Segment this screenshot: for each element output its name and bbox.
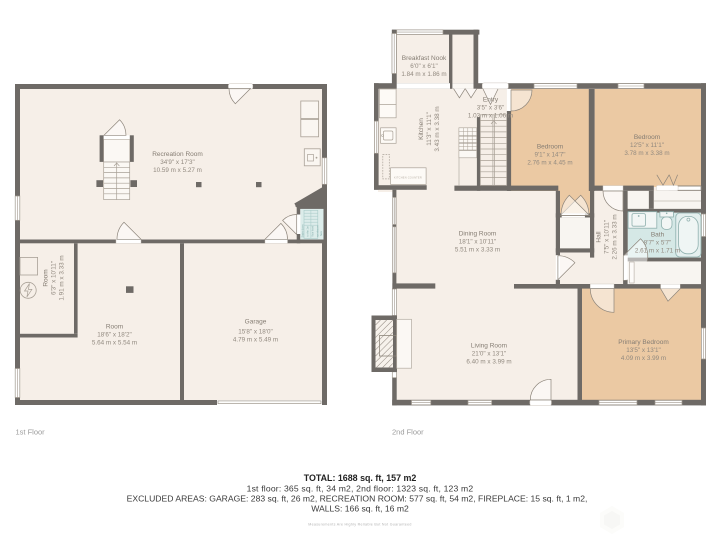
svg-text:Living Room: Living Room bbox=[471, 343, 507, 350]
svg-text:Bedroom: Bedroom bbox=[537, 144, 563, 151]
svg-text:7'5" x 10'11": 7'5" x 10'11" bbox=[603, 220, 610, 254]
svg-text:2.26 m x 3.33 m: 2.26 m x 3.33 m bbox=[611, 214, 618, 259]
svg-text:11'3" x 11'1": 11'3" x 11'1" bbox=[426, 112, 433, 146]
svg-text:3.43 m x 3.38 m: 3.43 m x 3.38 m bbox=[434, 106, 441, 151]
svg-text:WALLS: 166 sq. ft, 16 m2: WALLS: 166 sq. ft, 16 m2 bbox=[311, 503, 409, 513]
svg-text:Stairs down: Stairs down bbox=[301, 224, 304, 238]
svg-text:Entry: Entry bbox=[483, 97, 499, 104]
svg-text:Room: Room bbox=[43, 269, 50, 286]
svg-text:1.03 m x 1.06 m: 1.03 m x 1.06 m bbox=[468, 112, 513, 119]
svg-text:13'5" x 13'1": 13'5" x 13'1" bbox=[626, 347, 661, 354]
svg-text:18'1" x 10'11": 18'1" x 10'11" bbox=[459, 238, 497, 245]
svg-text:3.78 m x 3.38 m: 3.78 m x 3.38 m bbox=[624, 150, 669, 157]
svg-text:Recreation Room: Recreation Room bbox=[152, 151, 203, 158]
svg-text:Bath: Bath bbox=[651, 232, 665, 239]
svg-text:10.59 m x 5.27 m: 10.59 m x 5.27 m bbox=[153, 167, 202, 174]
svg-text:Room: Room bbox=[106, 324, 123, 331]
svg-text:1st Floor: 1st Floor bbox=[16, 428, 46, 437]
svg-text:12'5" x 11'1": 12'5" x 11'1" bbox=[630, 142, 664, 149]
svg-text:Bedroom: Bedroom bbox=[634, 134, 660, 141]
svg-text:2.76 m x 4.45 m: 2.76 m x 4.45 m bbox=[527, 159, 572, 166]
svg-text:9'1" x 14'7": 9'1" x 14'7" bbox=[534, 151, 565, 158]
svg-text:4.09 m x 3.99 m: 4.09 m x 3.99 m bbox=[621, 355, 666, 362]
svg-text:EXCLUDED AREAS: GARAGE: 283 sq: EXCLUDED AREAS: GARAGE: 283 sq. ft, 26 m… bbox=[127, 493, 588, 503]
svg-text:21'0" x 13'1": 21'0" x 13'1" bbox=[472, 350, 507, 357]
svg-text:4.79 m x 5.49 m: 4.79 m x 5.49 m bbox=[233, 336, 278, 343]
svg-text:Dining Room: Dining Room bbox=[459, 231, 497, 238]
svg-text:Kitchen: Kitchen bbox=[418, 118, 425, 140]
svg-text:2.61 m x 1.71 m: 2.61 m x 1.71 m bbox=[635, 247, 680, 254]
svg-text:3'5" x 3'6": 3'5" x 3'6" bbox=[477, 104, 505, 111]
svg-text:KITCHEN COUNTER: KITCHEN COUNTER bbox=[394, 175, 422, 179]
svg-text:6.40 m x 3.99 m: 6.40 m x 3.99 m bbox=[466, 358, 511, 365]
svg-text:Breakfast Nook: Breakfast Nook bbox=[402, 55, 447, 62]
svg-text:6'0" x 6'1": 6'0" x 6'1" bbox=[410, 63, 438, 70]
svg-text:2nd Floor: 2nd Floor bbox=[392, 428, 424, 437]
svg-text:Hall: Hall bbox=[596, 231, 603, 243]
svg-text:to the 1st: to the 1st bbox=[307, 226, 310, 237]
svg-text:18'6" x 18'2": 18'6" x 18'2" bbox=[97, 331, 132, 338]
svg-text:Garage: Garage bbox=[245, 319, 267, 326]
svg-text:5.64 m x 5.54 m: 5.64 m x 5.54 m bbox=[92, 339, 137, 346]
svg-text:1.84 m x 1.86 m: 1.84 m x 1.86 m bbox=[401, 71, 446, 78]
svg-text:Measurements Are Highly Reliab: Measurements Are Highly Reliable But Not… bbox=[308, 523, 411, 527]
svg-text:15'8" x 18'0": 15'8" x 18'0" bbox=[238, 328, 273, 335]
svg-text:6'3" x 10'11": 6'3" x 10'11" bbox=[50, 261, 57, 295]
svg-text:here: here bbox=[320, 230, 323, 236]
svg-text:Primary Bedroom: Primary Bedroom bbox=[618, 339, 669, 346]
svg-text:floor level: floor level bbox=[312, 225, 315, 236]
svg-text:1.91 m x 3.33 m: 1.91 m x 3.33 m bbox=[58, 255, 65, 300]
svg-text:8'7" x 5'7": 8'7" x 5'7" bbox=[644, 239, 672, 246]
svg-text:34'9" x 17'3": 34'9" x 17'3" bbox=[160, 159, 195, 166]
svg-text:5.51 m x 3.33 m: 5.51 m x 3.33 m bbox=[455, 246, 500, 253]
svg-text:TOTAL: 1688 sq. ft, 157 m2: TOTAL: 1688 sq. ft, 157 m2 bbox=[304, 473, 417, 483]
svg-text:1st floor: 365 sq. ft, 34 m2,: 1st floor: 365 sq. ft, 34 m2, 2nd floor:… bbox=[247, 483, 474, 493]
